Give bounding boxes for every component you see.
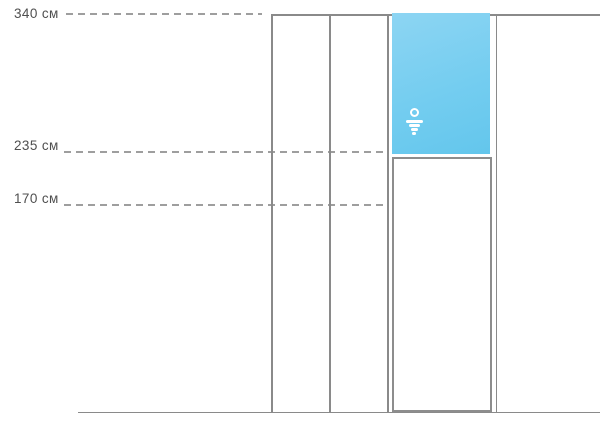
height-label-340: 340 см — [14, 6, 59, 21]
wall-vertical-line-2 — [329, 14, 331, 413]
lower-zone-panel — [392, 157, 492, 412]
height-label-170: 170 см — [14, 191, 59, 206]
height-diagram: 340 см 235 см 170 см — [0, 0, 600, 433]
dashed-guide-line-170 — [64, 204, 388, 206]
dashed-guide-line-340 — [66, 13, 262, 15]
logo-bar — [409, 124, 420, 127]
wall-vertical-line-3 — [387, 14, 389, 413]
floor-line — [78, 412, 600, 414]
logo-bar — [411, 128, 418, 131]
wall-vertical-line-4 — [496, 14, 498, 413]
logo-bar — [412, 132, 416, 135]
water-spray-logo-icon — [405, 108, 423, 135]
logo-ring — [410, 108, 419, 117]
highlighted-zone-panel[interactable] — [392, 13, 490, 154]
wall-vertical-line-1 — [271, 14, 273, 413]
height-label-235: 235 см — [14, 138, 59, 153]
logo-bar — [406, 120, 423, 123]
dashed-guide-line-235 — [64, 151, 388, 153]
